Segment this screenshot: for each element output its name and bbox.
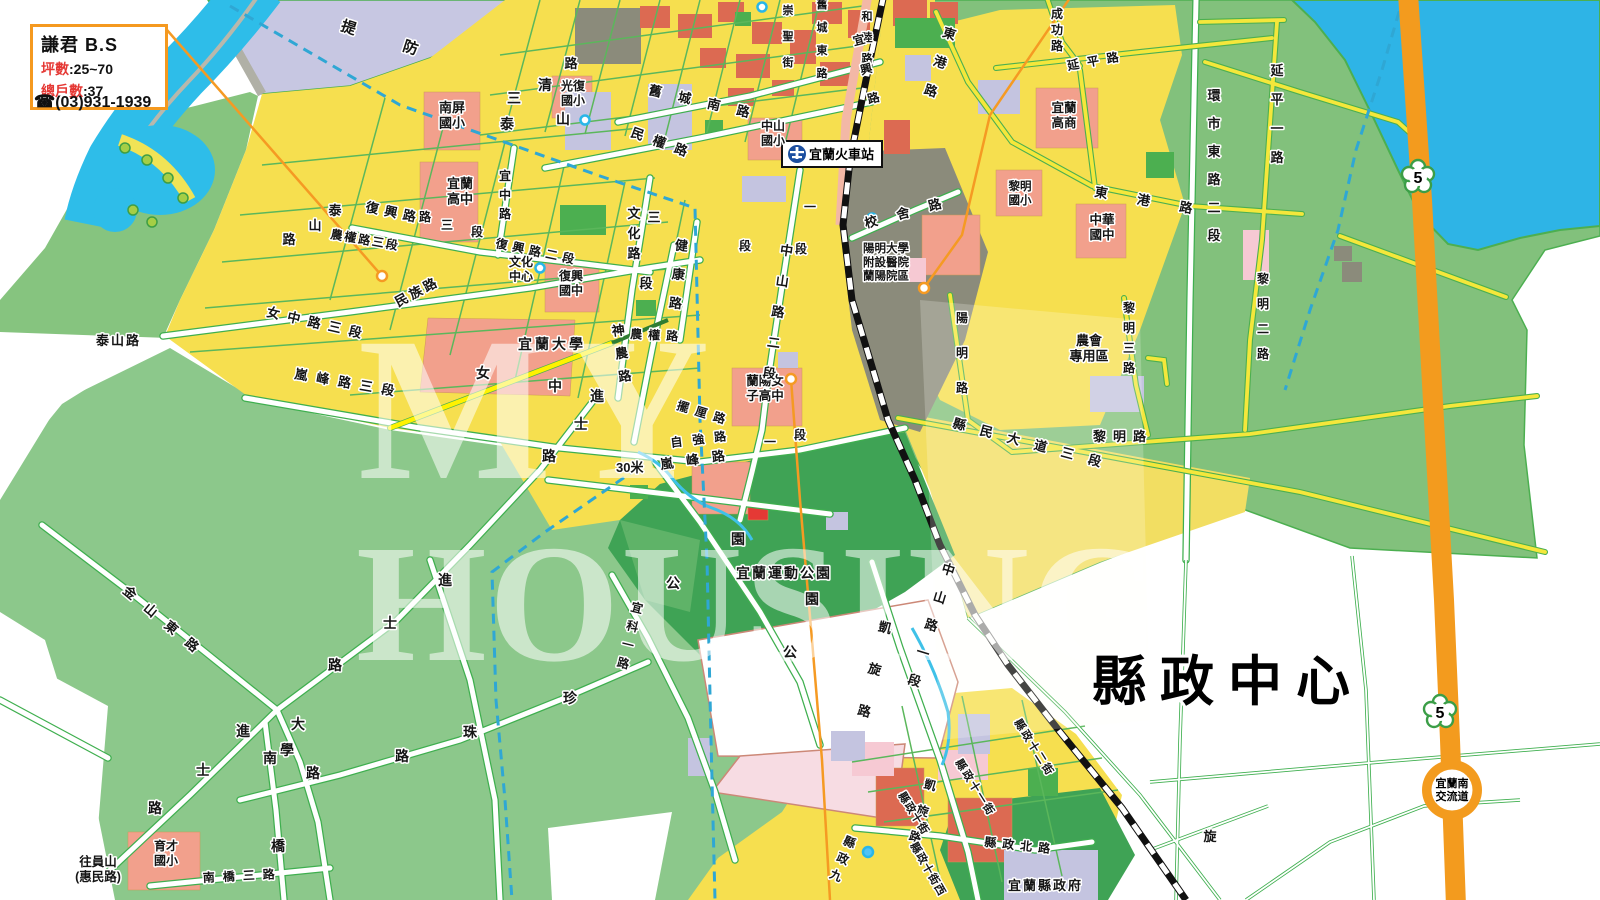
- map-label: 中山國小: [761, 118, 785, 147]
- school-liming: [996, 170, 1042, 216]
- map-label: 農權路: [630, 326, 685, 344]
- map-label: 南: [263, 750, 277, 766]
- map-label: 大: [291, 716, 305, 732]
- map-label: 學: [280, 742, 294, 758]
- listing-title: 謙君 B.S: [41, 31, 157, 57]
- map-label: 路: [282, 232, 296, 247]
- map-label: 山: [556, 111, 570, 127]
- map-label: 進: [590, 388, 604, 404]
- map-label: 宜蘭運動公園: [736, 565, 832, 581]
- map-label: 三: [507, 90, 521, 106]
- watermark-line2: HOUSING: [356, 511, 1164, 697]
- map-label: 復興國中: [558, 268, 583, 297]
- map-label: 一: [804, 200, 816, 214]
- map-label: 公: [666, 575, 680, 591]
- district-center-label: 縣政中心: [1092, 652, 1364, 712]
- interchange-label-1: 宜蘭南: [1436, 776, 1469, 790]
- phone-icon: ☎: [34, 92, 55, 111]
- map-label: 旋: [1202, 829, 1217, 844]
- interchange-label-2: 交流道: [1436, 789, 1469, 803]
- map-label: 段: [471, 224, 484, 239]
- station-name: 宜蘭火車站: [809, 147, 874, 162]
- map-label: 文化路: [627, 206, 641, 261]
- map-label: 士: [383, 615, 397, 631]
- map-label: 珍: [563, 690, 578, 706]
- map-label: 園: [805, 591, 819, 607]
- map-label: 文化中心: [509, 254, 533, 283]
- highway-number: 5: [1436, 705, 1445, 722]
- map-label: 光復國小: [560, 78, 586, 107]
- map-label: 士: [196, 762, 210, 778]
- map-label: 三: [647, 210, 660, 225]
- map-label: 橋: [271, 838, 286, 854]
- map-label: 泰: [499, 116, 515, 132]
- map-label: 路: [328, 657, 343, 673]
- map-label: 段: [794, 427, 807, 442]
- map-label: 育才國小: [154, 838, 178, 867]
- map-label: 三: [441, 218, 453, 232]
- map-label: 宜中路: [499, 168, 512, 221]
- map-label: 南屏國小: [439, 100, 465, 131]
- map-label: 30米: [616, 460, 644, 475]
- highway-number: 5: [1414, 170, 1423, 187]
- map-label: 成功路: [1051, 6, 1064, 53]
- map-image: 宜蘭南 交流道 5 5: [0, 0, 1600, 900]
- map-label: 段: [639, 276, 652, 291]
- interchange-circle: 宜蘭南 交流道: [1422, 760, 1482, 820]
- map-label: 進: [236, 723, 250, 739]
- listing-area: 坪數:25~70: [41, 59, 157, 79]
- map-label: 士: [574, 416, 588, 432]
- map-label: 段: [739, 238, 752, 253]
- map-label: 路: [306, 765, 321, 781]
- map-label: 路: [148, 800, 163, 816]
- map-label: 路: [564, 56, 578, 71]
- map-label: 清: [538, 77, 552, 93]
- map-label: 泰: [327, 203, 342, 218]
- map-label: 珠: [463, 724, 478, 740]
- map-canvas[interactable]: 宜蘭南 交流道 5 5: [0, 0, 1600, 900]
- map-label: 段: [795, 241, 808, 256]
- map-label: 一: [764, 435, 776, 449]
- map-label: 宜蘭縣政府: [1008, 878, 1083, 893]
- map-label: 黎明路: [1093, 429, 1153, 444]
- map-label: 陽明大學附設醫院蘭陽院區: [863, 241, 909, 283]
- map-label: 陽明路: [956, 311, 969, 395]
- map-label: 宜蘭大學: [518, 336, 586, 352]
- listing-phone[interactable]: ☎(03)931-1939: [34, 92, 151, 112]
- map-label: 山: [308, 218, 321, 233]
- map-label: 路: [542, 448, 557, 464]
- map-label: 中: [548, 378, 562, 394]
- map-label: 園: [731, 531, 745, 547]
- map-label: 崇聖街: [782, 3, 794, 69]
- map-label: 女: [476, 365, 490, 381]
- train-station-label: 宜蘭火車站: [782, 141, 882, 167]
- map-label: 黎明國小: [1009, 179, 1032, 207]
- hospital-block: [922, 215, 980, 275]
- map-label: 泰山路: [95, 333, 141, 348]
- map-label: 宜蘭高中: [447, 176, 473, 207]
- map-label: 進: [438, 572, 452, 588]
- map-label: 路: [395, 748, 410, 764]
- map-label: 公: [783, 644, 797, 660]
